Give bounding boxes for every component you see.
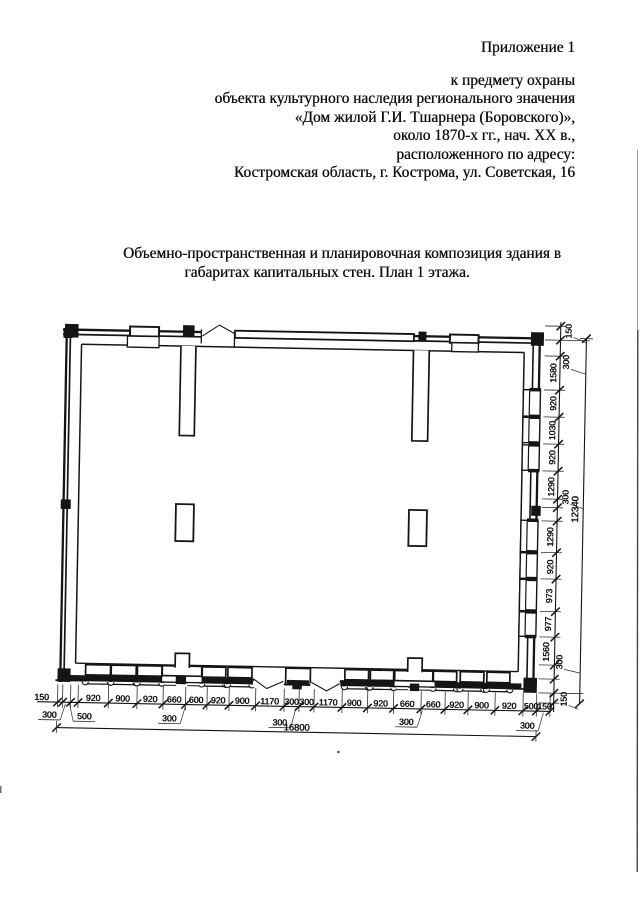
svg-text:300: 300 <box>284 696 299 706</box>
svg-text:300: 300 <box>299 697 314 707</box>
svg-text:300: 300 <box>520 720 535 730</box>
svg-text:300: 300 <box>560 490 570 505</box>
svg-text:150: 150 <box>559 692 569 707</box>
svg-text:1560: 1560 <box>541 642 551 662</box>
svg-text:1170: 1170 <box>319 697 338 707</box>
svg-text:900: 900 <box>115 693 130 703</box>
svg-text:12340: 12340 <box>570 496 582 523</box>
svg-text:1580: 1580 <box>548 363 558 383</box>
svg-text:300: 300 <box>162 713 177 723</box>
svg-text:300: 300 <box>42 709 57 719</box>
svg-text:16800: 16800 <box>283 721 309 732</box>
svg-text:973: 973 <box>544 589 554 604</box>
svg-text:1170: 1170 <box>260 696 279 706</box>
svg-text:660: 660 <box>426 699 441 709</box>
svg-text:920: 920 <box>449 700 464 710</box>
svg-text:900: 900 <box>347 698 362 708</box>
svg-text:600: 600 <box>189 695 204 705</box>
svg-text:920: 920 <box>502 701 517 711</box>
svg-text:920: 920 <box>143 694 158 704</box>
svg-text:920: 920 <box>373 698 388 708</box>
svg-text:920: 920 <box>548 396 558 411</box>
svg-text:1030: 1030 <box>547 421 557 441</box>
svg-text:300: 300 <box>561 355 571 370</box>
svg-text:1290: 1290 <box>545 527 555 547</box>
svg-text:660: 660 <box>400 699 415 709</box>
svg-text:150: 150 <box>563 324 573 339</box>
svg-text:900: 900 <box>235 696 250 706</box>
svg-text:920: 920 <box>547 450 557 465</box>
svg-text:300: 300 <box>554 655 564 670</box>
svg-text:500: 500 <box>77 711 92 721</box>
svg-text:920: 920 <box>86 693 101 703</box>
svg-text:920: 920 <box>211 695 226 705</box>
svg-text:660: 660 <box>167 694 182 704</box>
svg-text:150: 150 <box>34 692 49 702</box>
svg-text:920: 920 <box>545 560 555 575</box>
svg-text:300: 300 <box>399 717 414 727</box>
svg-text:1290: 1290 <box>546 477 556 497</box>
svg-text:977: 977 <box>543 617 553 632</box>
svg-text:900: 900 <box>474 700 489 710</box>
